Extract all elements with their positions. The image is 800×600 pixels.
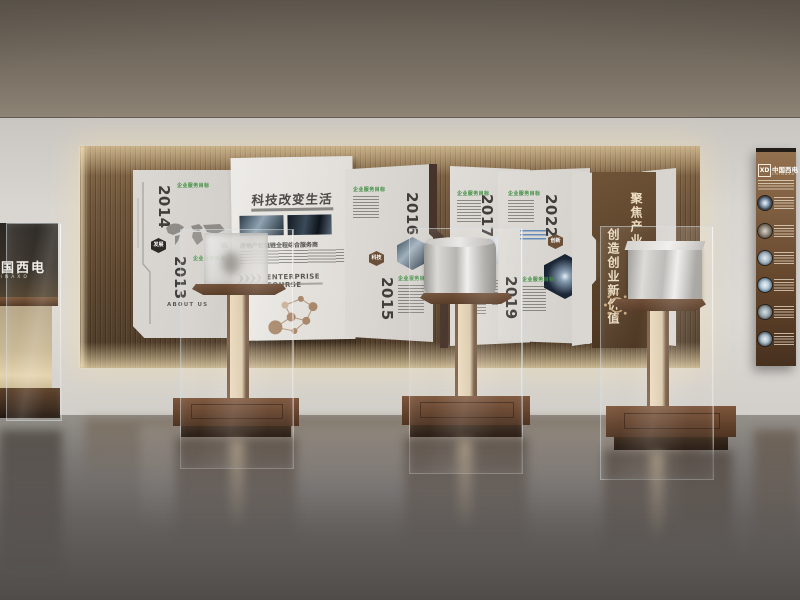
placeholder-text-lines <box>522 286 546 312</box>
circle-photo <box>758 332 772 346</box>
placeholder-text-lines <box>758 180 794 190</box>
placeholder-text-lines <box>774 197 794 209</box>
placeholder-text-lines <box>774 333 794 345</box>
circle-photo <box>758 251 772 265</box>
circle-photo <box>758 224 772 238</box>
placeholder-text-lines <box>774 225 794 237</box>
column-reflection <box>230 440 244 530</box>
cabinet-glass <box>6 223 62 421</box>
glass-case <box>600 226 714 480</box>
circle-photo <box>758 305 772 319</box>
cove-light-left-edge <box>80 146 88 368</box>
brand-name-en: CHINAXD <box>772 172 795 176</box>
placeholder-text-lines <box>508 200 534 224</box>
column-reflection <box>458 440 472 530</box>
section-header: 企业服务目标 <box>522 278 554 283</box>
exhibition-hall-render: 2014 企业服务目标 发展 2013 企业服务目标 ABOUT US 科技改变… <box>0 0 800 600</box>
glass-case <box>180 229 294 469</box>
ceiling-vignette <box>0 0 800 120</box>
circle-photo <box>758 196 772 210</box>
placeholder-text-lines <box>774 252 794 264</box>
floor-reflection-cabinet <box>0 430 62 580</box>
left-display-cabinet: 中国西电 CHINAXD <box>0 223 62 425</box>
brand-logo: XD <box>758 164 771 177</box>
placeholder-text-lines <box>774 306 794 318</box>
section-header: 企业服务目标 <box>508 192 540 197</box>
circle-photo <box>758 278 772 292</box>
floor-reflection-brand-panel <box>754 430 798 550</box>
placeholder-text-lines <box>774 279 794 291</box>
placeholder-text-lines-blue <box>520 230 546 240</box>
brand-panel: XD 中国西电 CHINAXD <box>756 148 796 366</box>
column-reflection <box>650 452 664 542</box>
pedestal-reflection <box>604 450 732 555</box>
